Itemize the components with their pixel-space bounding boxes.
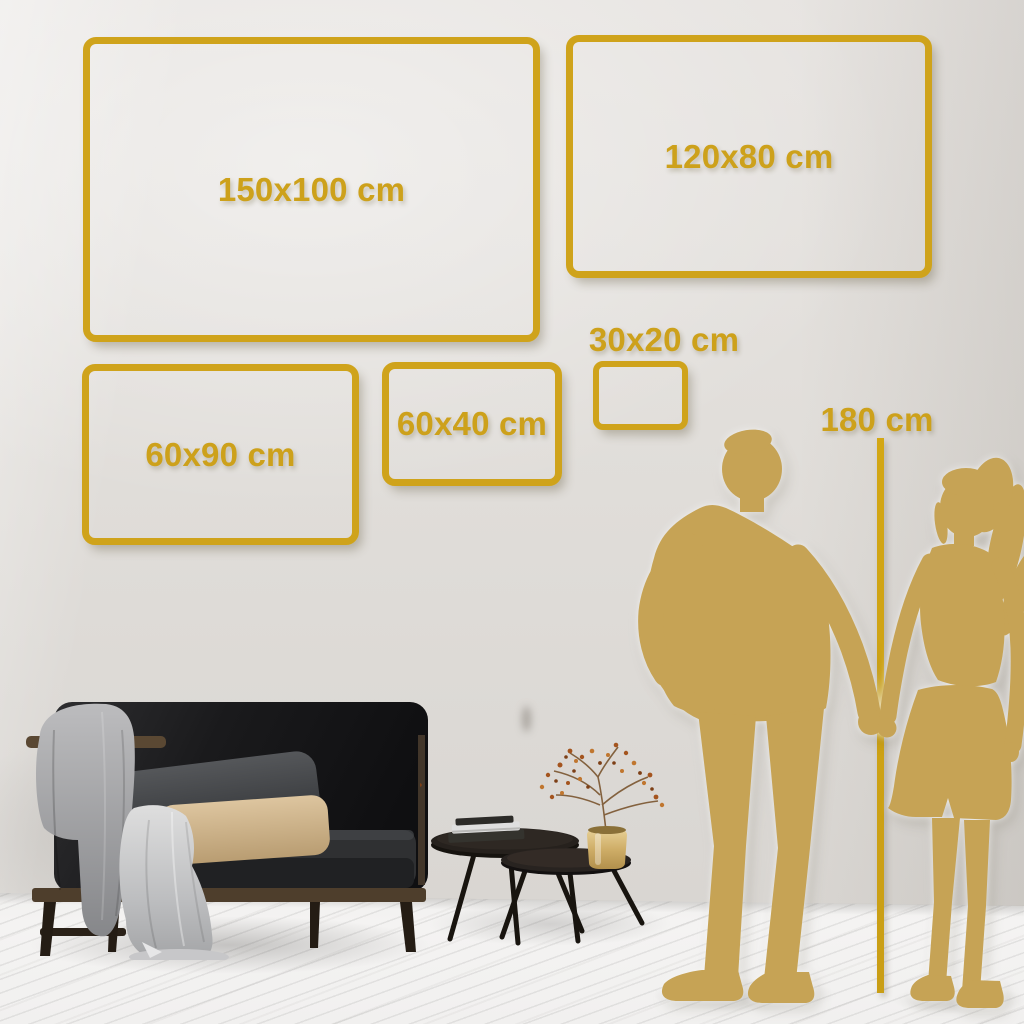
man-silhouette [647,426,884,1003]
couple-silhouettes [0,0,1024,1024]
woman-silhouette [878,453,1024,1008]
size-guide-mockup: 150x100 cm 120x80 cm 60x90 cm 60x40 cm 3… [0,0,1024,1024]
